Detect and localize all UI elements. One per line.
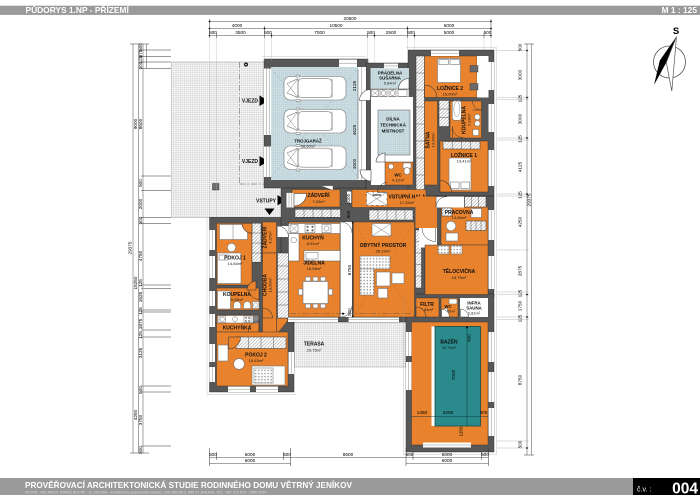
svg-text:500: 500 bbox=[138, 179, 143, 187]
svg-text:10,60m²: 10,60m² bbox=[268, 277, 273, 292]
svg-text:5000: 5000 bbox=[245, 452, 256, 457]
svg-text:500: 500 bbox=[407, 30, 415, 35]
svg-text:4750: 4750 bbox=[138, 250, 143, 261]
svg-text:3250: 3250 bbox=[443, 410, 454, 415]
svg-text:8500: 8500 bbox=[343, 452, 354, 457]
svg-text:500: 500 bbox=[481, 452, 489, 457]
svg-text:VJEZD: VJEZD bbox=[242, 99, 259, 105]
svg-text:500: 500 bbox=[138, 216, 143, 224]
svg-text:2000: 2000 bbox=[138, 198, 143, 209]
svg-text:5000: 5000 bbox=[442, 452, 453, 457]
svg-text:7000: 7000 bbox=[314, 30, 325, 35]
svg-text:2875: 2875 bbox=[518, 265, 523, 276]
svg-text:1625: 1625 bbox=[138, 291, 143, 302]
svg-text:17,34m²: 17,34m² bbox=[400, 200, 415, 205]
svg-text:7,13m²: 7,13m² bbox=[467, 113, 472, 126]
svg-text:500: 500 bbox=[209, 30, 217, 35]
svg-text:1875: 1875 bbox=[138, 318, 143, 329]
svg-text:500: 500 bbox=[209, 452, 217, 457]
svg-text:125: 125 bbox=[138, 331, 143, 339]
svg-text:500: 500 bbox=[518, 43, 523, 51]
svg-text:1750: 1750 bbox=[518, 300, 523, 311]
svg-text:125: 125 bbox=[518, 314, 523, 322]
svg-text:2500: 2500 bbox=[386, 30, 397, 35]
svg-text:4625: 4625 bbox=[352, 124, 357, 135]
svg-text:35,19m²: 35,19m² bbox=[376, 249, 391, 254]
svg-text:6750: 6750 bbox=[347, 264, 352, 275]
svg-text:600: 600 bbox=[467, 334, 472, 342]
svg-text:1450: 1450 bbox=[417, 410, 428, 415]
svg-text:125: 125 bbox=[138, 307, 143, 315]
svg-text:PŮDORYS 1.NP - PŘÍZEMÍ: PŮDORYS 1.NP - PŘÍZEMÍ bbox=[26, 4, 130, 15]
svg-text:6000: 6000 bbox=[444, 23, 455, 28]
svg-text:4125: 4125 bbox=[518, 161, 523, 172]
svg-text:8,91m²: 8,91m² bbox=[307, 241, 320, 246]
svg-text:3000: 3000 bbox=[518, 113, 523, 124]
svg-text:VJEZD: VJEZD bbox=[242, 159, 259, 165]
svg-text:125: 125 bbox=[518, 191, 523, 199]
svg-text:500: 500 bbox=[518, 440, 523, 448]
svg-text:4250: 4250 bbox=[518, 216, 523, 227]
svg-text:č.v. :: č.v. : bbox=[637, 487, 651, 494]
svg-text:125: 125 bbox=[518, 94, 523, 102]
svg-text:18,75m²: 18,75m² bbox=[452, 275, 467, 280]
svg-text:29375: 29375 bbox=[526, 193, 531, 206]
svg-text:2000: 2000 bbox=[346, 193, 351, 204]
svg-text:500: 500 bbox=[138, 61, 143, 69]
svg-text:PROVĚŘOVACÍ ARCHITEKTONICKÁ ST: PROVĚŘOVACÍ ARCHITEKTONICKÁ STUDIE RODIN… bbox=[25, 479, 352, 490]
svg-text:2,81m²: 2,81m² bbox=[468, 311, 481, 316]
svg-text:MÍSTNOST: MÍSTNOST bbox=[382, 129, 405, 134]
svg-text:ZÁDVEŘÍ: ZÁDVEŘÍ bbox=[308, 191, 331, 199]
svg-text:125: 125 bbox=[518, 135, 523, 143]
svg-text:5,84m²: 5,84m² bbox=[384, 81, 397, 86]
svg-text:500: 500 bbox=[283, 452, 291, 457]
svg-text:15,00m²: 15,00m² bbox=[443, 92, 458, 97]
svg-text:3125: 3125 bbox=[138, 347, 143, 358]
svg-text:15,63m²: 15,63m² bbox=[249, 358, 264, 363]
svg-text:7,00m²: 7,00m² bbox=[312, 199, 325, 204]
svg-text:004: 004 bbox=[672, 481, 698, 495]
svg-text:S: S bbox=[673, 26, 679, 37]
svg-text:7000: 7000 bbox=[451, 369, 456, 380]
svg-text:šatna: šatna bbox=[373, 193, 382, 197]
svg-text:3000: 3000 bbox=[518, 69, 523, 80]
svg-text:500: 500 bbox=[264, 30, 272, 35]
svg-text:125: 125 bbox=[138, 279, 143, 287]
svg-text:500: 500 bbox=[484, 30, 492, 35]
svg-text:500: 500 bbox=[406, 452, 414, 457]
svg-text:4000: 4000 bbox=[232, 23, 243, 28]
svg-text:13,39m²: 13,39m² bbox=[431, 132, 436, 147]
svg-text:VSTUPY: VSTUPY bbox=[256, 198, 277, 204]
svg-text:43,75m²: 43,75m² bbox=[442, 345, 457, 350]
svg-text:4,12m²: 4,12m² bbox=[392, 178, 405, 183]
svg-text:500: 500 bbox=[347, 308, 352, 316]
svg-text:500: 500 bbox=[138, 446, 143, 454]
svg-text:500: 500 bbox=[346, 210, 351, 218]
svg-text:2125: 2125 bbox=[352, 80, 357, 91]
svg-text:1500: 1500 bbox=[352, 158, 357, 169]
svg-text:300: 300 bbox=[480, 410, 488, 415]
svg-text:KUCHYŇKA: KUCHYŇKA bbox=[223, 324, 252, 332]
svg-text:10500: 10500 bbox=[329, 23, 342, 28]
svg-text:29375: 29375 bbox=[127, 241, 132, 254]
svg-text:500: 500 bbox=[367, 30, 375, 35]
svg-text:13,41m²: 13,41m² bbox=[457, 159, 472, 164]
svg-text:AUTOR : ING.ARCH.TOMÁŠ NOVÁK -: AUTOR : ING.ARCH.TOMÁŠ NOVÁK - Q. DESIGN… bbox=[25, 490, 266, 495]
svg-text:13,86m²: 13,86m² bbox=[452, 215, 467, 220]
svg-text:8500: 8500 bbox=[138, 118, 143, 129]
svg-text:16,58m²: 16,58m² bbox=[307, 266, 322, 271]
svg-text:3750: 3750 bbox=[138, 414, 143, 425]
svg-text:1150: 1150 bbox=[459, 426, 464, 436]
svg-text:6000: 6000 bbox=[442, 458, 453, 463]
svg-text:3500: 3500 bbox=[235, 30, 246, 35]
svg-text:125: 125 bbox=[518, 289, 523, 297]
svg-text:29,75m²: 29,75m² bbox=[307, 348, 322, 353]
svg-text:20500: 20500 bbox=[343, 16, 356, 21]
svg-text:4,37m²: 4,37m² bbox=[268, 231, 273, 244]
svg-text:DÍLNA: DÍLNA bbox=[386, 117, 400, 122]
svg-text:TECHNICKÁ: TECHNICKÁ bbox=[380, 123, 407, 128]
svg-text:8750: 8750 bbox=[518, 374, 523, 385]
svg-text:6000: 6000 bbox=[245, 458, 256, 463]
svg-text:500: 500 bbox=[138, 386, 143, 394]
svg-text:58,50m²: 58,50m² bbox=[301, 144, 316, 149]
svg-text:14,84m²: 14,84m² bbox=[228, 261, 243, 266]
svg-text:5000: 5000 bbox=[444, 30, 455, 35]
svg-text:M 1 : 125: M 1 : 125 bbox=[662, 5, 698, 15]
